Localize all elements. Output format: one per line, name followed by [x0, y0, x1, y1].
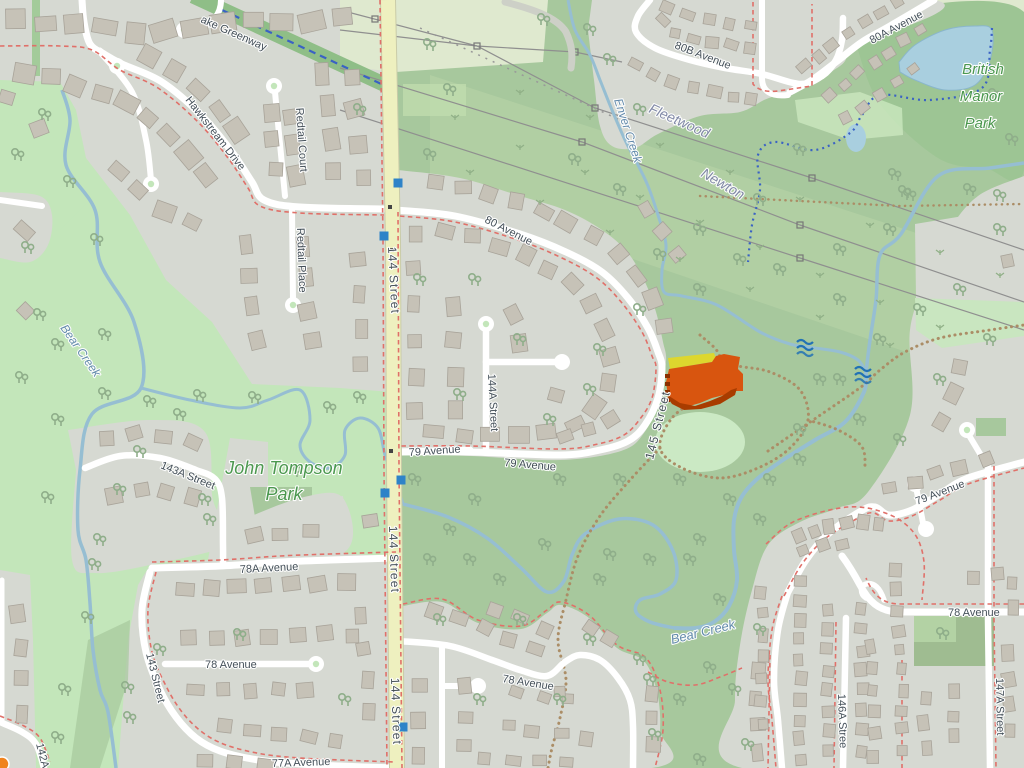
svg-text:147A Street: 147A Street: [993, 678, 1006, 736]
svg-text:John Tompson: John Tompson: [224, 458, 342, 478]
svg-text:Manor: Manor: [960, 88, 1004, 105]
svg-text:78 Avenue: 78 Avenue: [205, 659, 257, 671]
svg-text:77A Avenue: 77A Avenue: [272, 756, 331, 768]
svg-text:Park: Park: [265, 484, 303, 504]
svg-text:Redtail Place: Redtail Place: [294, 228, 308, 293]
svg-text:78 Avenue: 78 Avenue: [948, 607, 1000, 619]
svg-text:British: British: [962, 61, 1004, 78]
svg-text:146A Stree: 146A Stree: [835, 694, 849, 749]
svg-text:144 Street: 144 Street: [388, 678, 404, 746]
svg-text:144 Street: 144 Street: [386, 526, 402, 594]
svg-text:Park: Park: [965, 115, 997, 132]
